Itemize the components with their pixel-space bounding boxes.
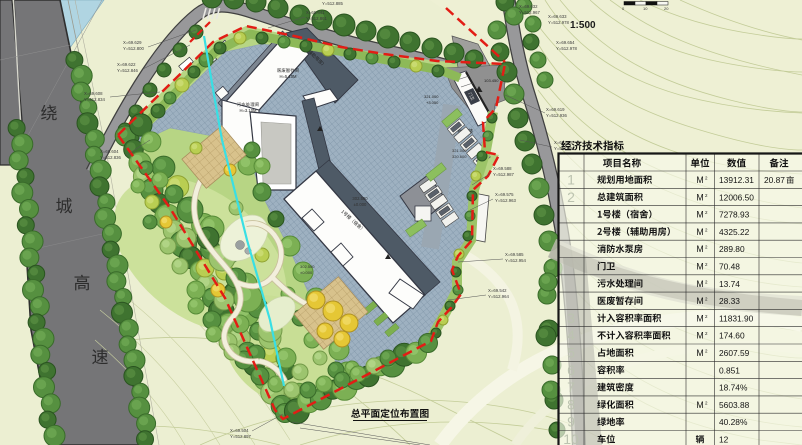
svg-text:20.87: 20.87 [764, 175, 785, 185]
svg-text:M: M [696, 192, 703, 202]
svg-text:13.74: 13.74 [719, 279, 740, 289]
svg-text:2607.59: 2607.59 [719, 348, 750, 358]
svg-text:2: 2 [567, 189, 575, 205]
svg-text:70.48: 70.48 [719, 261, 740, 271]
svg-text:H=3.10M: H=3.10M [239, 108, 257, 113]
svg-text:Y=512.978: Y=512.978 [556, 46, 578, 51]
svg-text:M: M [696, 296, 703, 306]
svg-text:±0.000: ±0.000 [300, 270, 313, 275]
svg-text:4: 4 [567, 327, 575, 343]
svg-text:Y=512.963: Y=512.963 [495, 198, 517, 203]
svg-text:X=69.504: X=69.504 [230, 428, 249, 433]
svg-text:Y=512.836: Y=512.836 [100, 155, 122, 160]
svg-text:X=69.608: X=69.608 [84, 91, 103, 96]
svg-text:5: 5 [567, 344, 575, 360]
svg-text:Y=512.978: Y=512.978 [548, 20, 570, 25]
svg-text:289.80: 289.80 [719, 244, 745, 254]
svg-text:Y=512.861: Y=512.861 [306, 16, 328, 21]
svg-text:X=69.654: X=69.654 [556, 40, 575, 45]
svg-text:X=69.588: X=69.588 [493, 166, 512, 171]
svg-text:M: M [696, 400, 703, 410]
svg-text:X=69.632: X=69.632 [519, 4, 538, 9]
svg-text:X=69.641: X=69.641 [306, 10, 325, 15]
svg-text:M: M [696, 313, 703, 323]
svg-text:7278.93: 7278.93 [719, 210, 750, 220]
svg-text:X=69.633: X=69.633 [548, 14, 567, 19]
svg-text:X=69.575: X=69.575 [495, 192, 514, 197]
svg-text:M: M [696, 331, 703, 341]
svg-text:Y=512.897: Y=512.897 [230, 434, 252, 439]
svg-text:Y=512.987: Y=512.987 [493, 172, 515, 177]
svg-text:5603.88: 5603.88 [719, 400, 750, 410]
svg-text:13912.31: 13912.31 [719, 175, 754, 185]
svg-text:±0.000: ±0.000 [354, 202, 367, 207]
svg-text:20: 20 [664, 6, 669, 11]
svg-text:103.450: 103.450 [484, 78, 499, 83]
svg-text:M: M [696, 175, 703, 185]
svg-text:10: 10 [643, 6, 648, 11]
svg-text:321.000: 321.000 [424, 94, 439, 99]
svg-text:M: M [696, 261, 703, 271]
svg-text:12006.50: 12006.50 [719, 192, 754, 202]
svg-text:Y=512.885: Y=512.885 [322, 1, 344, 6]
svg-text:X=69.585: X=69.585 [505, 252, 524, 257]
svg-text:Y=512.967: Y=512.967 [519, 10, 541, 15]
svg-text:X=69.629: X=69.629 [123, 40, 142, 45]
svg-text:4325.22: 4325.22 [719, 227, 750, 237]
svg-text:M: M [696, 227, 703, 237]
svg-text:12: 12 [719, 434, 729, 444]
svg-text:X=69.542: X=69.542 [488, 288, 507, 293]
svg-text:8: 8 [567, 396, 575, 412]
svg-text:H=5.10M: H=5.10M [279, 74, 297, 79]
svg-text:18.74%: 18.74% [719, 383, 748, 393]
svg-text:M: M [696, 279, 703, 289]
svg-text:302.500: 302.500 [352, 196, 368, 201]
svg-text:11831.90: 11831.90 [719, 313, 754, 323]
svg-text:X=69.619: X=69.619 [546, 107, 565, 112]
svg-text:M: M [696, 348, 703, 358]
svg-text:302.500: 302.500 [300, 264, 315, 269]
svg-text:M: M [696, 210, 703, 220]
svg-text:M: M [696, 244, 703, 254]
svg-text:40.28%: 40.28% [719, 417, 748, 427]
svg-text:320.600: 320.600 [452, 154, 467, 159]
svg-text:Y=512.954: Y=512.954 [505, 258, 527, 263]
svg-text:X=69.622: X=69.622 [117, 62, 136, 67]
svg-text:7: 7 [567, 379, 575, 395]
svg-text:X=69.604: X=69.604 [100, 149, 119, 154]
svg-text:Y=512.834: Y=512.834 [84, 97, 106, 102]
svg-text:0.851: 0.851 [719, 365, 740, 375]
svg-text:1:500: 1:500 [570, 20, 596, 31]
svg-text:10: 10 [563, 431, 579, 445]
svg-text:1: 1 [567, 171, 575, 187]
svg-text:Y=512.964: Y=512.964 [488, 294, 510, 299]
svg-text:9: 9 [567, 414, 575, 430]
svg-text:Y=512.800: Y=512.800 [123, 46, 145, 51]
svg-text:Y=512.846: Y=512.846 [117, 68, 139, 73]
svg-text:321.000: 321.000 [452, 148, 467, 153]
svg-text:6: 6 [567, 362, 575, 378]
svg-text:3: 3 [567, 310, 575, 326]
svg-text:28.33: 28.33 [719, 296, 740, 306]
svg-text:+3.050: +3.050 [426, 100, 439, 105]
svg-text:174.60: 174.60 [719, 331, 745, 341]
svg-text:Y=512.936: Y=512.936 [546, 113, 568, 118]
